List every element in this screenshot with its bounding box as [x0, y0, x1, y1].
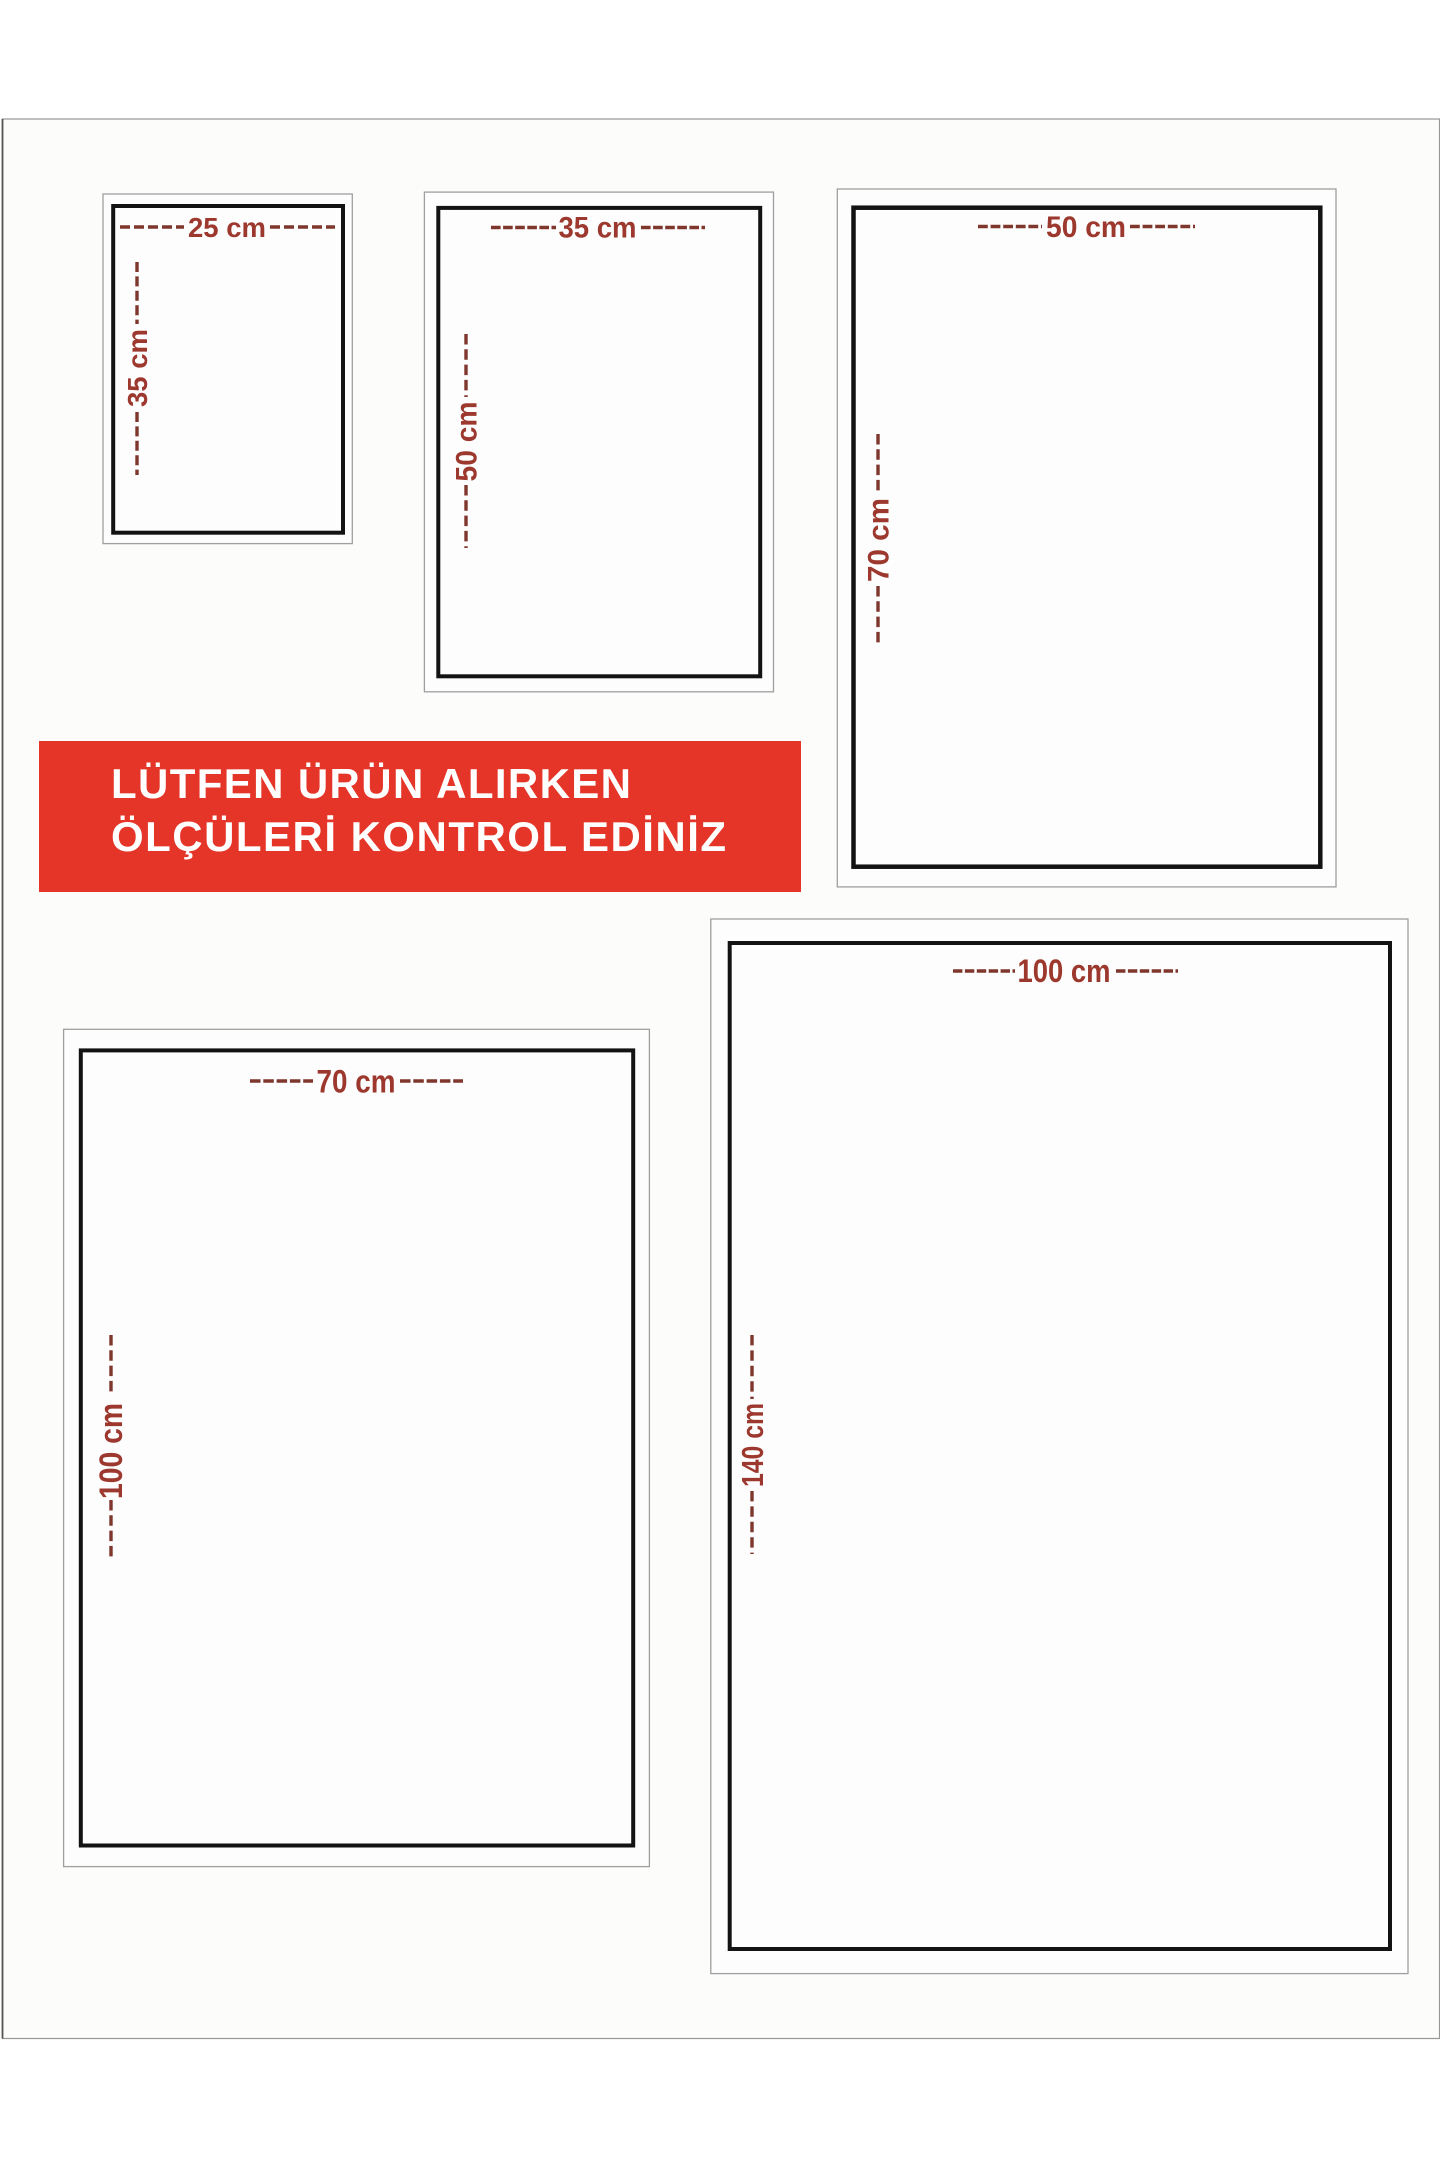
svg-text:35 cm: 35 cm	[559, 212, 637, 245]
svg-text:35 cm: 35 cm	[122, 329, 153, 407]
svg-text:ÖLÇÜLERİ KONTROL EDİNİZ: ÖLÇÜLERİ KONTROL EDİNİZ	[111, 813, 726, 860]
svg-text:140 cm: 140 cm	[735, 1403, 770, 1487]
svg-text:50 cm: 50 cm	[451, 402, 484, 482]
svg-text:100 cm: 100 cm	[93, 1403, 129, 1499]
svg-text:50 cm: 50 cm	[1046, 211, 1126, 244]
svg-text:70 cm: 70 cm	[317, 1064, 396, 1100]
svg-text:100 cm: 100 cm	[1018, 953, 1111, 989]
svg-text:25 cm: 25 cm	[188, 212, 266, 243]
svg-text:LÜTFEN ÜRÜN ALIRKEN: LÜTFEN ÜRÜN ALIRKEN	[111, 760, 631, 807]
svg-text:70 cm: 70 cm	[863, 498, 896, 582]
